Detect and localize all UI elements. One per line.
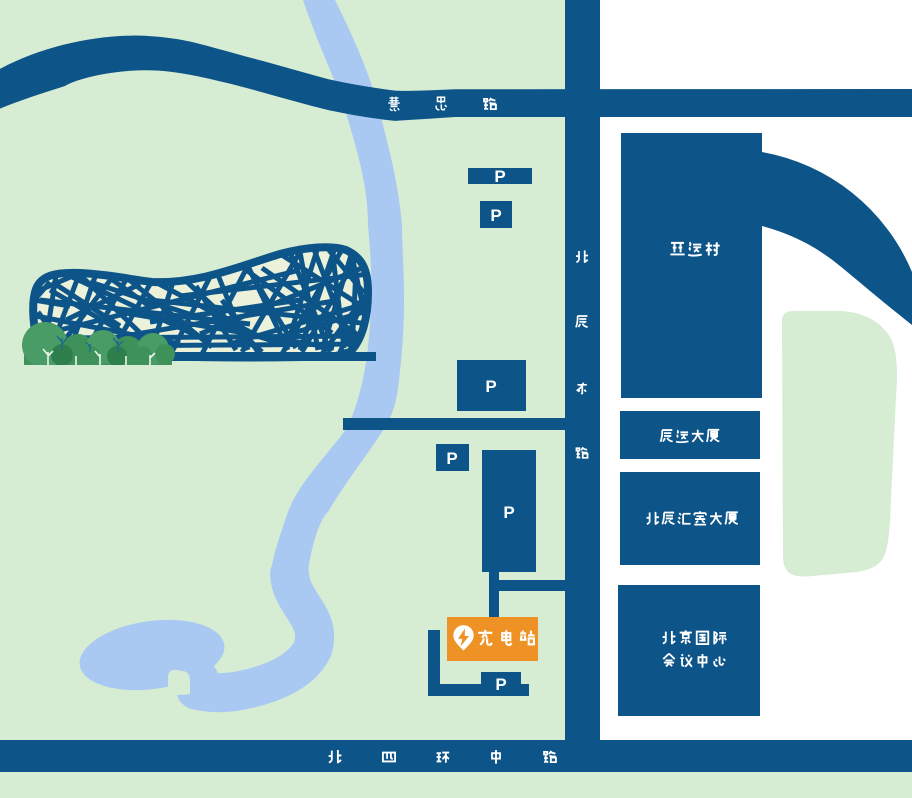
- svg-text:P: P: [494, 167, 505, 186]
- svg-text:P: P: [503, 503, 514, 522]
- svg-text:P: P: [485, 377, 496, 396]
- svg-text:P: P: [446, 449, 457, 468]
- svg-text:P: P: [490, 206, 501, 225]
- svg-text:P: P: [495, 675, 506, 694]
